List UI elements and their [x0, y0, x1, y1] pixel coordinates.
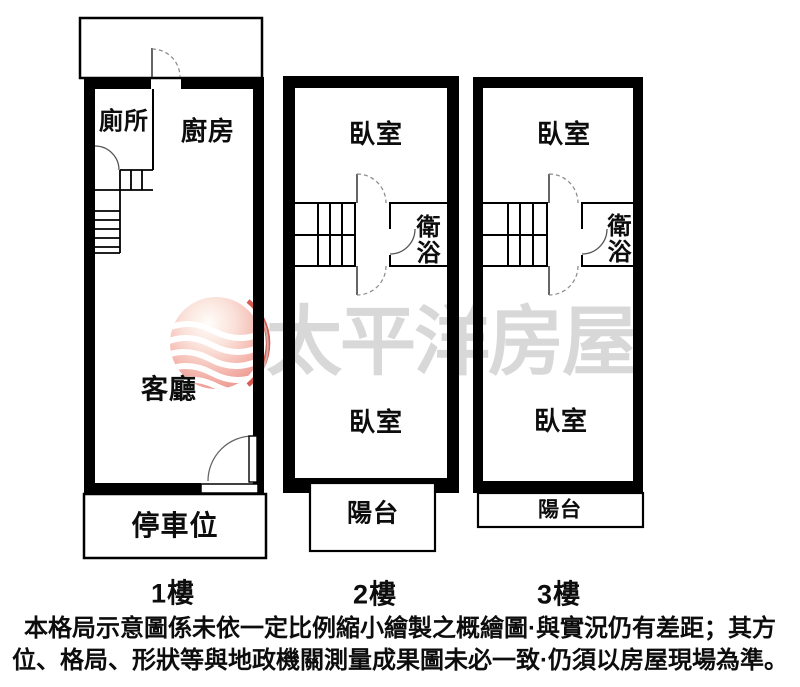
floorplan-linework — [0, 0, 800, 687]
floor3-doors — [549, 174, 607, 295]
floor1-living-door — [201, 436, 258, 493]
floor3-balcony-label: 陽台 — [538, 500, 582, 521]
floor2-bathroom-label: 衛浴 — [413, 214, 437, 266]
disclaimer-line2: 位、格局、形狀等與地政機關測量成果圖未必一致·仍須以房屋現場為準。 — [0, 649, 800, 673]
floor1-title: 1樓 — [151, 581, 195, 608]
floor3-bedroom-upper-label: 臥室 — [537, 121, 591, 147]
floor1-toilet-door — [95, 146, 119, 170]
disclaimer-line1: 本格局示意圖係未依一定比例縮小繪製之概繪圖·與實況仍有差距；其方 — [0, 617, 800, 641]
floor1-walls — [84, 77, 264, 494]
floor1-toilet-label: 廁所 — [99, 110, 149, 134]
floor1-stairs — [95, 170, 153, 253]
floor2-doors — [357, 174, 415, 295]
floorplan-canvas: 太平洋房屋 — [0, 0, 800, 687]
floor2-bedroom-lower-label: 臥室 — [349, 409, 403, 435]
floor1-front-yard — [80, 18, 262, 78]
floor1-kitchen-label: 廚房 — [181, 118, 235, 144]
floor3-bedroom-lower-label: 臥室 — [534, 408, 588, 434]
floor2-balcony-label: 陽台 — [347, 502, 399, 527]
floor2-title: 2樓 — [353, 582, 397, 609]
floor1-plan — [80, 18, 266, 558]
floor2-bedroom-upper-label: 臥室 — [349, 121, 403, 147]
floor1-parking-label: 停車位 — [131, 512, 218, 540]
floor3-title: 3樓 — [537, 582, 581, 609]
floor1-entry-door — [152, 48, 180, 77]
floor1-living-label: 客廳 — [141, 377, 197, 404]
floor3-bathroom-label: 衛浴 — [604, 213, 628, 265]
